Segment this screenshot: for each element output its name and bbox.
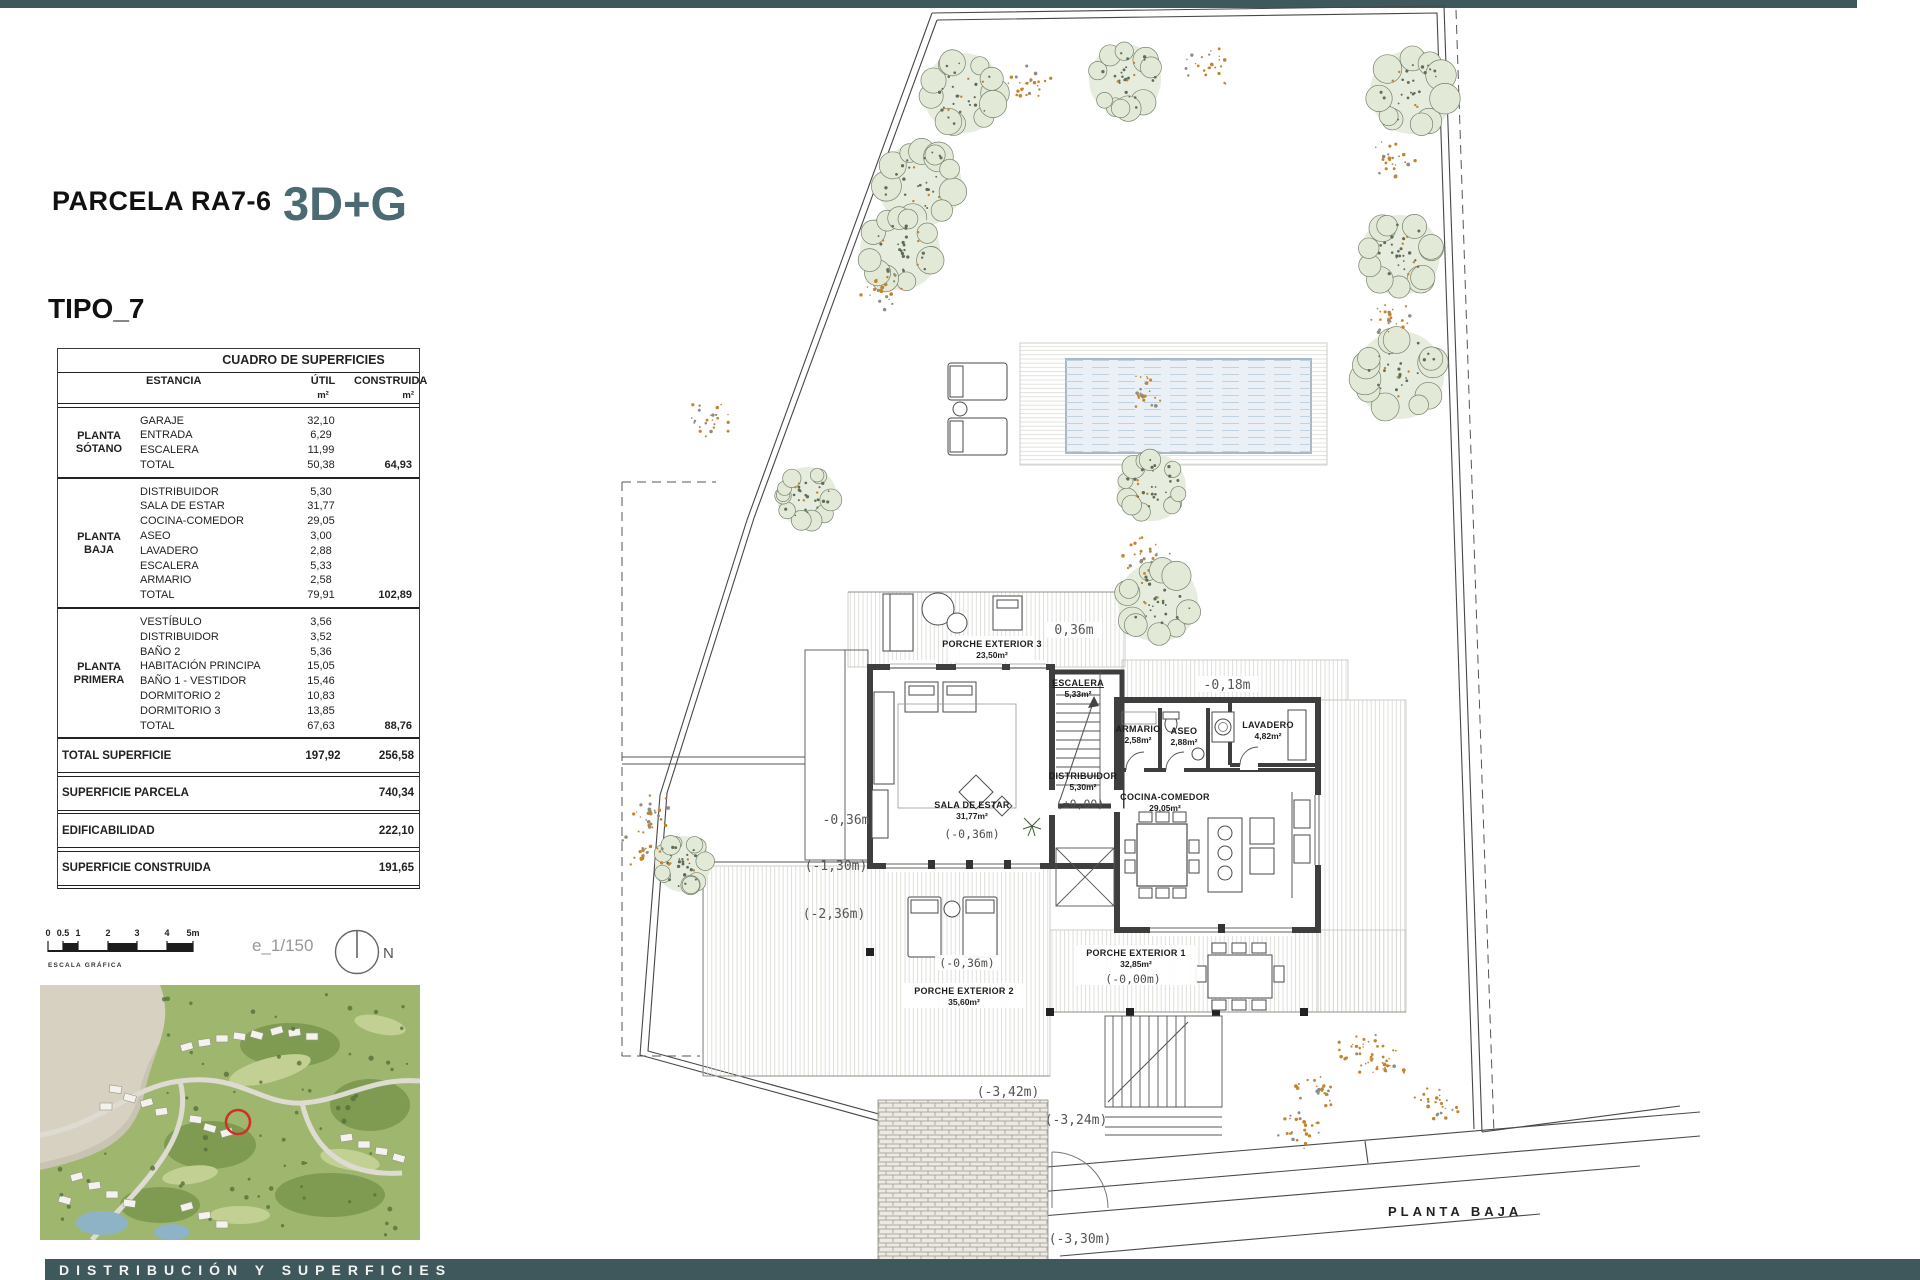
tree-icon	[1115, 558, 1201, 646]
table-section: PLANTASÓTANOGARAJE32,10ENTRADA6,29ESCALE…	[58, 408, 419, 477]
label-sala-area: 31,77m²	[956, 811, 988, 821]
table-section: PLANTAPRIMERAVESTÍBULO3,56DISTRIBUIDOR3,…	[58, 609, 419, 737]
label-distribuidor-area: 5,30m²	[1070, 782, 1097, 792]
label-distribuidor: DISTRIBUIDOR	[1049, 771, 1118, 781]
summary-row: SUPERFICIE CONSTRUIDA191,65	[58, 852, 419, 885]
north-indicator: N	[330, 924, 405, 984]
pool-loungers	[948, 363, 1007, 455]
table-units: m²m²	[58, 390, 419, 403]
section-label: PLANTAPRIMERA	[58, 615, 140, 733]
label-cocina: COCINA-COMEDOR	[1120, 792, 1210, 802]
label-porche2-level: (-0,36m)	[939, 956, 994, 970]
shrub-icon	[1414, 1087, 1460, 1120]
exterior-stairs	[1105, 1016, 1222, 1135]
shaft-box	[1056, 848, 1114, 906]
section-label: PLANTABAJA	[58, 485, 140, 603]
label-lavadero: LAVADERO	[1242, 720, 1294, 730]
summary-row: TOTAL SUPERFICIE197,92256,58	[58, 739, 419, 772]
label-porche3: PORCHE EXTERIOR 3	[942, 639, 1042, 649]
footer-bar: DISTRIBUCIÓN Y SUPERFICIES	[45, 1259, 1920, 1280]
label-porche1: PORCHE EXTERIOR 1	[1086, 948, 1186, 958]
label-cocina-area: 29,05m²	[1149, 803, 1181, 813]
plan-title: PLANTA BAJA	[1388, 1204, 1522, 1219]
tree-icon	[1349, 327, 1448, 421]
scale-tick: 5m	[186, 928, 199, 938]
label-porche2-area: 35,60m²	[948, 997, 980, 1007]
surface-row: ASEO3,00	[140, 529, 419, 544]
scale-tick: 3	[134, 928, 139, 938]
summary-row: SUPERFICIE PARCELA740,34	[58, 777, 419, 810]
label-minus-2-36: (-2,36m)	[803, 907, 866, 922]
tree-icon	[919, 50, 1009, 136]
table-header: ESTANCIAÚTILCONSTRUIDA	[58, 373, 419, 390]
pool	[1066, 359, 1311, 453]
scale-ratio: e_1/150	[252, 936, 313, 956]
label-minus-3-42: (-3,42m)	[977, 1085, 1040, 1100]
surface-row: HABITACIÓN PRINCIPA15,05	[140, 659, 419, 674]
garage-door-swing	[1052, 1152, 1108, 1208]
shrub-icon	[1358, 1049, 1406, 1073]
label-escalera-area: 5,33m²	[1065, 689, 1092, 699]
scale-tick: 4	[164, 928, 169, 938]
section-total-row: TOTAL50,3864,93	[140, 458, 419, 473]
page-title: PARCELA RA7-6	[52, 186, 272, 217]
label-aseo: ASEO	[1171, 726, 1198, 736]
label-minus-3-30: (-3,30m)	[1049, 1232, 1112, 1247]
tree-icon	[1089, 42, 1162, 121]
surface-row: ESCALERA5,33	[140, 559, 419, 574]
scale-tick: 1	[75, 928, 80, 938]
scale-tick: 0	[45, 928, 50, 938]
section-label: PLANTASÓTANO	[58, 414, 140, 473]
scale-tick: 0.5	[57, 928, 70, 938]
surface-row: ESCALERA11,99	[140, 443, 419, 458]
surface-row: BAÑO 25,36	[140, 645, 419, 660]
table-section: PLANTABAJADISTRIBUIDOR5,30SALA DE ESTAR3…	[58, 479, 419, 607]
summary-row: EDIFICABILIDAD222,10	[58, 814, 419, 847]
label-0-36m: 0,36m	[1054, 623, 1093, 638]
footer-title: DISTRIBUCIÓN Y SUPERFICIES	[59, 1262, 452, 1278]
retaining-wall	[878, 1100, 1048, 1266]
surface-row: DORMITORIO 313,85	[140, 704, 419, 719]
surface-row: BAÑO 1 - VESTIDOR15,46	[140, 674, 419, 689]
shrub-icon	[1294, 1076, 1332, 1107]
north-letter: N	[383, 945, 394, 962]
shrub-icon	[1185, 47, 1227, 84]
label-left-minus-0-36: -0,36m	[823, 813, 870, 828]
label-armario: ARMARIO	[1115, 724, 1160, 734]
type-label: TIPO_7	[48, 293, 144, 325]
label-escalera: ESCALERA	[1052, 678, 1104, 688]
surface-row: LAVADERO2,88	[140, 544, 419, 559]
label-porche2: PORCHE EXTERIOR 2	[914, 986, 1014, 996]
surfaces-table: CUADRO DE SUPERFICIESESTANCIAÚTILCONSTRU…	[57, 348, 420, 889]
label-sala-level: (-0,36m)	[944, 827, 999, 841]
surface-row: ENTRADA6,29	[140, 428, 419, 443]
label-minus-0-18m: -0,18m	[1204, 678, 1251, 693]
shrub-icon	[1277, 1111, 1320, 1149]
surface-row: SALA DE ESTAR31,77	[140, 499, 419, 514]
map-pond	[76, 1211, 128, 1235]
label-minus-3-24: (-3,24m)	[1045, 1113, 1108, 1128]
label-porche1-area: 32,85m²	[1120, 959, 1152, 969]
label-armario-area: 2,58m²	[1125, 735, 1152, 745]
label-porche1-level: (-0,00m)	[1105, 972, 1160, 986]
surface-row: DISTRIBUIDOR5,30	[140, 485, 419, 500]
label-lavadero-area: 4,82m²	[1255, 731, 1282, 741]
floor-plan: PORCHE EXTERIOR 3 23,50m² 0,36m -0,18m E…	[560, 0, 1920, 1280]
tree-icon	[775, 467, 842, 531]
surface-row: VESTÍBULO3,56	[140, 615, 419, 630]
section-total-row: TOTAL67,6388,76	[140, 719, 419, 734]
shrub-icon	[1375, 141, 1417, 178]
label-porche3-area: 23,50m²	[976, 650, 1008, 660]
scale-tick: 2	[105, 928, 110, 938]
shrub-icon	[1338, 1034, 1385, 1067]
surface-row: ARMARIO2,58	[140, 573, 419, 588]
model-badge: 3D+G	[283, 176, 407, 231]
label-minus-1-30: (-1,30m)	[805, 859, 868, 874]
sheet: PARCELA RA7-6 3D+G TIPO_7 CUADRO DE SUPE…	[0, 0, 1920, 1280]
section-total-row: TOTAL79,91102,89	[140, 588, 419, 603]
surface-row: GARAJE32,10	[140, 414, 419, 429]
driveway-ramp	[1035, 1112, 1700, 1256]
site-map-thumbnail	[40, 985, 420, 1240]
surface-row: DISTRIBUIDOR3,52	[140, 630, 419, 645]
table-title: CUADRO DE SUPERFICIES	[58, 349, 419, 373]
tree-icon	[1358, 214, 1443, 298]
label-sala: SALA DE ESTAR	[934, 800, 1010, 810]
surface-row: DORMITORIO 210,83	[140, 689, 419, 704]
label-aseo-area: 2,88m²	[1171, 737, 1198, 747]
shrub-icon	[1008, 64, 1053, 97]
label-distribuidor-level: (±0,00)	[1056, 797, 1104, 811]
shrub-icon	[691, 403, 730, 437]
surface-row: COCINA-COMEDOR29,05	[140, 514, 419, 529]
scale-caption: ESCALA GRÁFICA	[48, 960, 123, 969]
